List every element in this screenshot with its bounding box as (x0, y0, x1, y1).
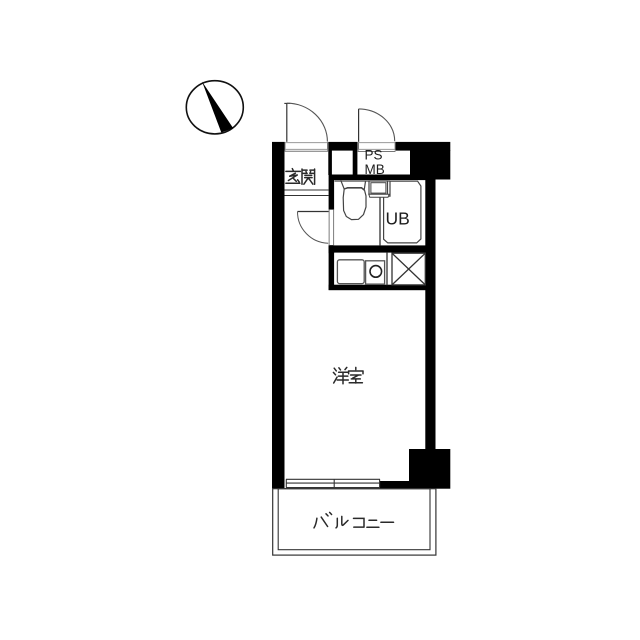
svg-text:MB: MB (365, 162, 385, 177)
svg-text:UB: UB (386, 209, 410, 229)
svg-text:PS: PS (365, 148, 383, 163)
